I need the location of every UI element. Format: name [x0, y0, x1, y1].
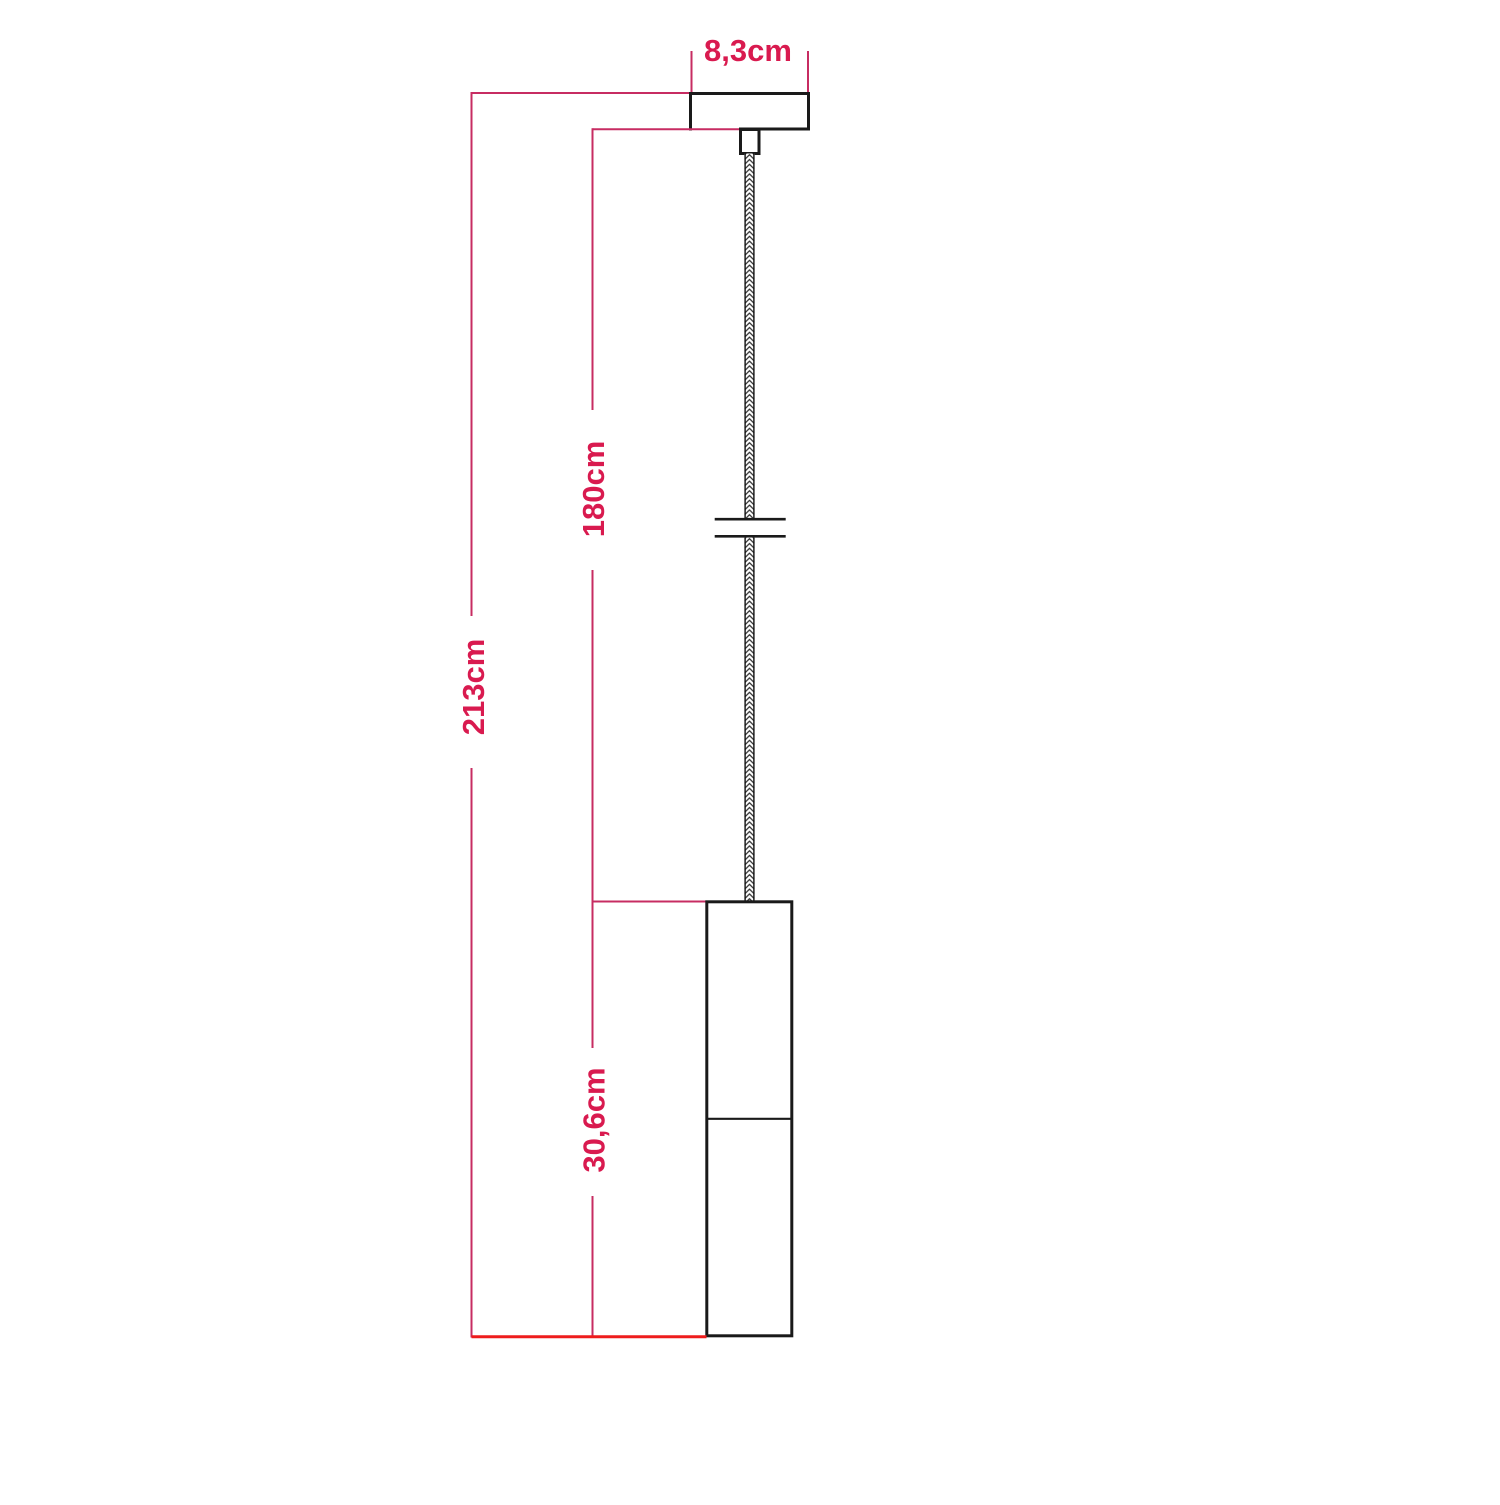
- svg-text:8,3cm: 8,3cm: [704, 33, 792, 68]
- svg-text:180cm: 180cm: [576, 441, 611, 538]
- svg-text:213cm: 213cm: [456, 639, 491, 736]
- svg-text:30,6cm: 30,6cm: [577, 1067, 612, 1172]
